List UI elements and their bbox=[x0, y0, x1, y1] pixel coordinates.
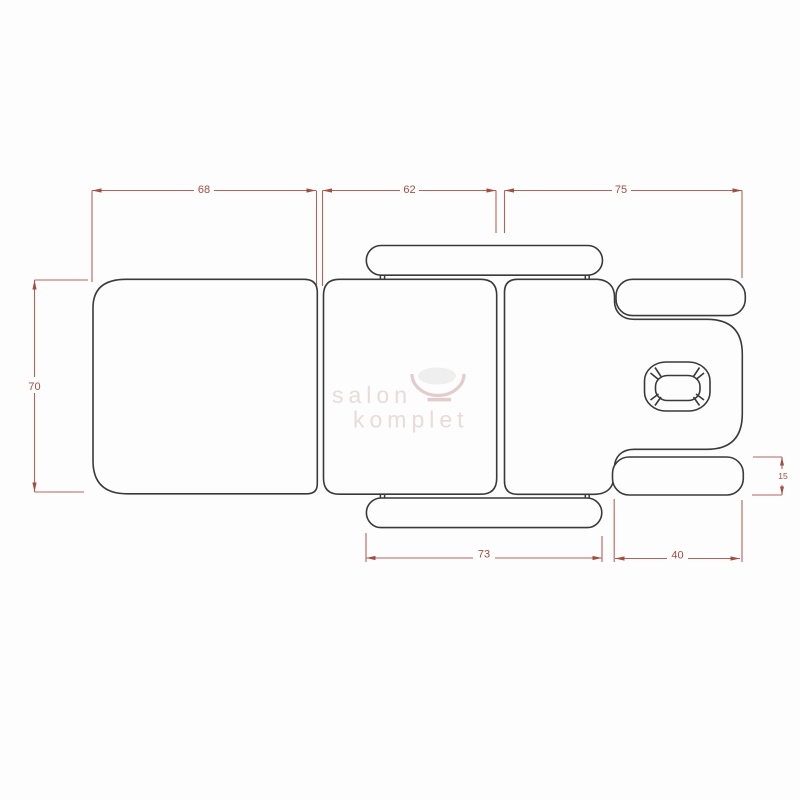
svg-text:75: 75 bbox=[615, 184, 627, 196]
svg-text:salon: salon bbox=[332, 382, 412, 408]
svg-text:70: 70 bbox=[28, 381, 40, 393]
svg-text:73: 73 bbox=[478, 549, 490, 561]
svg-text:40: 40 bbox=[671, 550, 683, 562]
svg-text:15: 15 bbox=[778, 471, 788, 481]
svg-text:komplet: komplet bbox=[353, 407, 469, 433]
svg-text:62: 62 bbox=[403, 184, 415, 196]
svg-text:68: 68 bbox=[198, 184, 210, 196]
